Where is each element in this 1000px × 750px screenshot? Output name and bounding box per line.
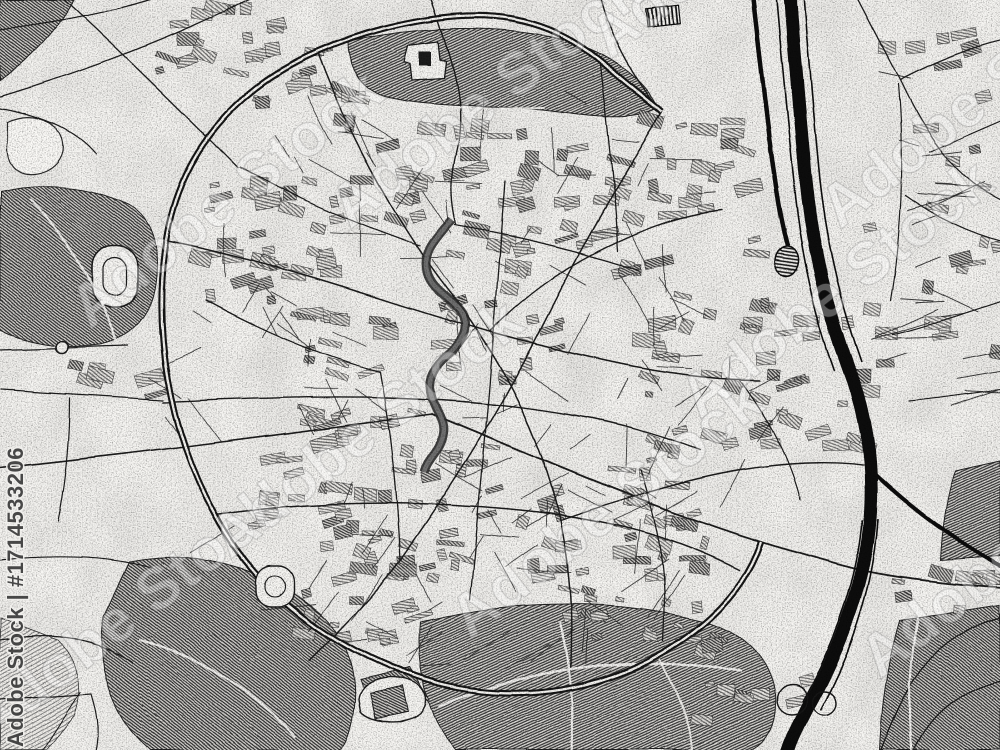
watermark-id-label: Adobe Stock | #1714533206 bbox=[3, 447, 28, 747]
adobe-stock-comp-image: Adobe StockAdobe StockAdobe StockAdobe S… bbox=[0, 0, 1000, 750]
city-map-sketch: Adobe StockAdobe StockAdobe StockAdobe S… bbox=[0, 0, 1000, 750]
